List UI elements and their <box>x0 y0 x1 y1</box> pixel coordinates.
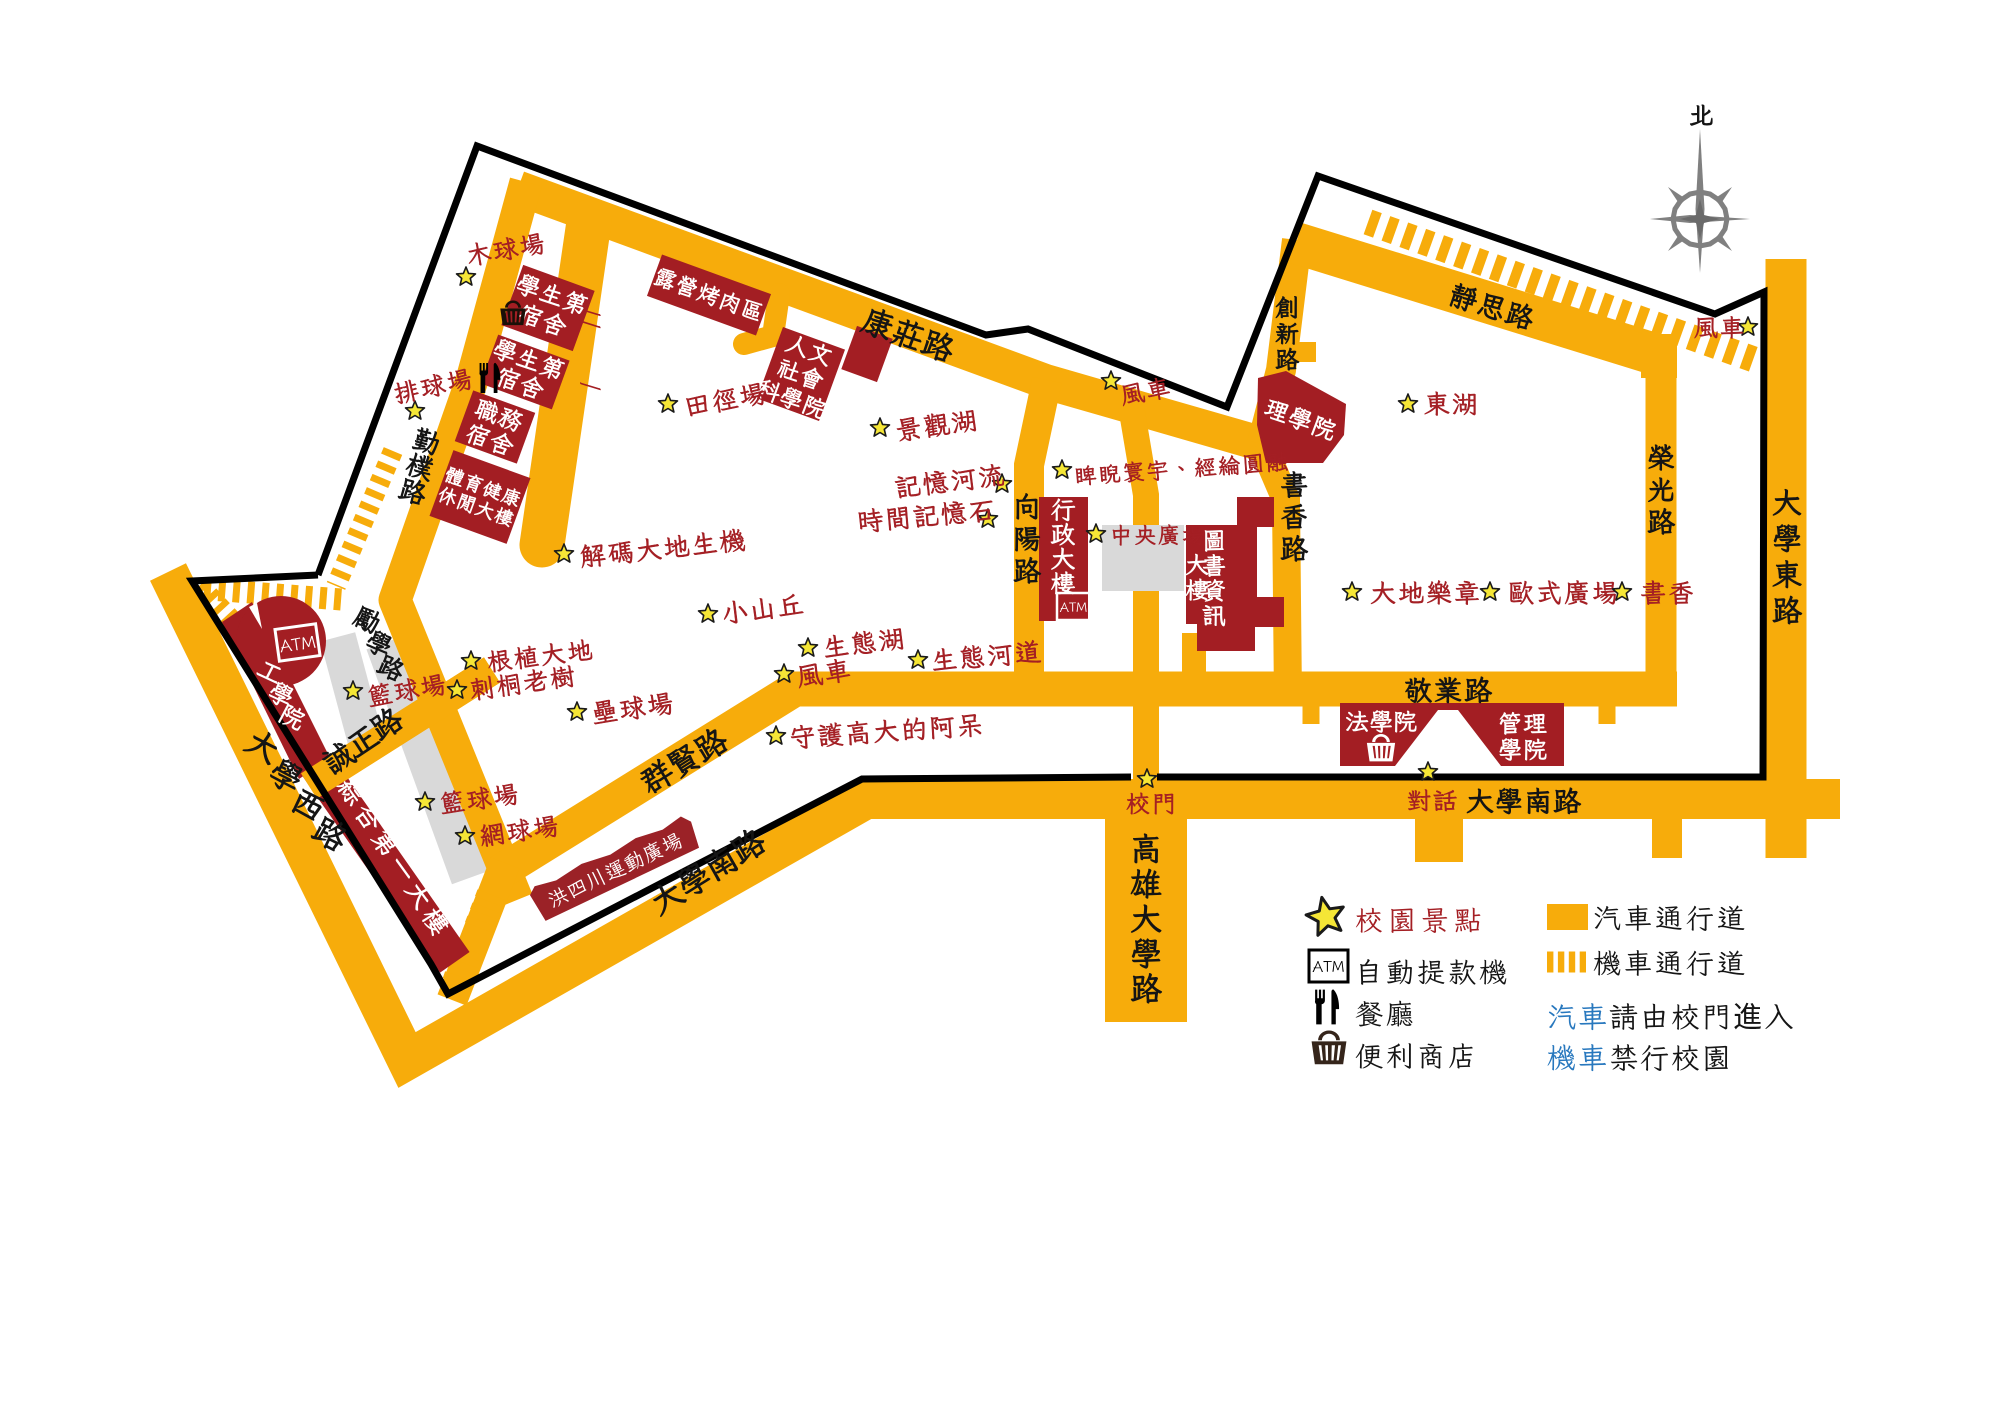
svg-text:機車禁行校園: 機車禁行校園 <box>1547 1039 1733 1077</box>
svg-text:風車: 風車 <box>1694 311 1746 343</box>
svg-text:大: 大 <box>1772 482 1802 522</box>
svg-text:中央廣場: 中央廣場 <box>1110 521 1206 550</box>
svg-text:校園景點: 校園景點 <box>1355 901 1487 938</box>
svg-text:學院: 學院 <box>1498 733 1548 765</box>
svg-text:學: 學 <box>1772 518 1802 558</box>
svg-text:汽車通行道: 汽車通行道 <box>1593 899 1748 936</box>
svg-text:東: 東 <box>1772 554 1802 594</box>
svg-text:大地樂章: 大地樂章 <box>1370 576 1482 610</box>
svg-text:汽車請由校門進入: 汽車請由校門進入 <box>1547 998 1795 1036</box>
svg-text:敬業路: 敬業路 <box>1404 671 1494 708</box>
svg-text:東湖: 東湖 <box>1424 387 1480 421</box>
svg-text:路: 路 <box>1013 552 1042 589</box>
svg-text:路: 路 <box>1275 343 1299 375</box>
svg-text:ATM: ATM <box>1059 599 1088 616</box>
svg-text:校門: 校門 <box>1126 787 1178 819</box>
svg-text:機車通行道: 機車通行道 <box>1593 944 1748 981</box>
svg-text:自動提款機: 自動提款機 <box>1355 953 1510 990</box>
svg-text:大學南路: 大學南路 <box>1466 782 1582 819</box>
svg-text:樓: 樓 <box>1185 573 1209 605</box>
svg-text:樓: 樓 <box>1050 567 1075 600</box>
svg-text:書香: 書香 <box>1640 576 1696 610</box>
svg-text:路: 路 <box>1772 590 1803 630</box>
svg-text:法學院: 法學院 <box>1345 705 1417 737</box>
svg-text:歐式廣場: 歐式廣場 <box>1508 576 1620 610</box>
svg-text:對話: 對話 <box>1407 784 1459 816</box>
svg-text:便利商店: 便利商店 <box>1355 1037 1479 1074</box>
svg-text:路: 路 <box>1130 968 1163 1010</box>
svg-text:ATM: ATM <box>1313 958 1345 977</box>
svg-text:路: 路 <box>1647 503 1676 540</box>
svg-text:路: 路 <box>1280 530 1309 567</box>
svg-text:餐廳: 餐廳 <box>1355 995 1417 1032</box>
svg-text:北: 北 <box>1688 99 1713 132</box>
